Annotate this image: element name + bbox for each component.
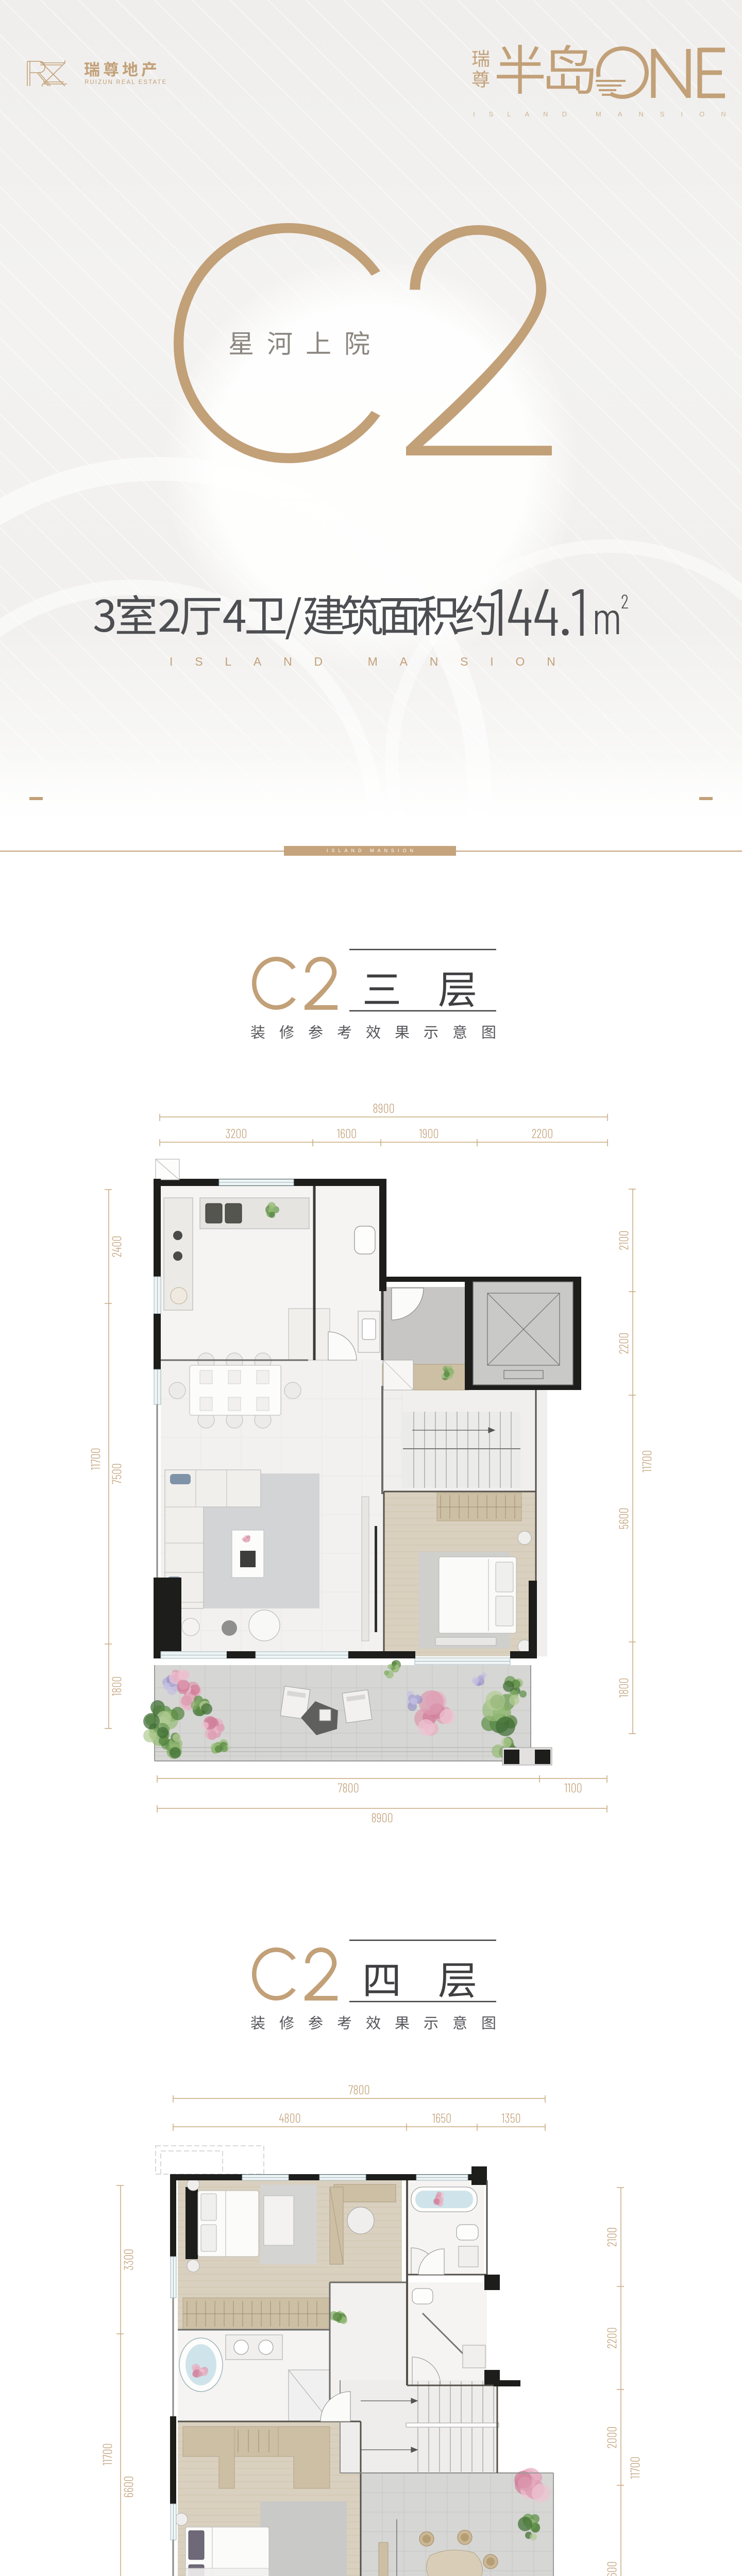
svg-text:RUIZUN REAL ESTATE: RUIZUN REAL ESTATE bbox=[85, 79, 167, 86]
svg-text:ISLAND: ISLAND bbox=[473, 110, 581, 118]
svg-text:MANSION: MANSION bbox=[596, 110, 742, 118]
svg-text:ISLAND MANSION: ISLAND MANSION bbox=[170, 655, 578, 668]
